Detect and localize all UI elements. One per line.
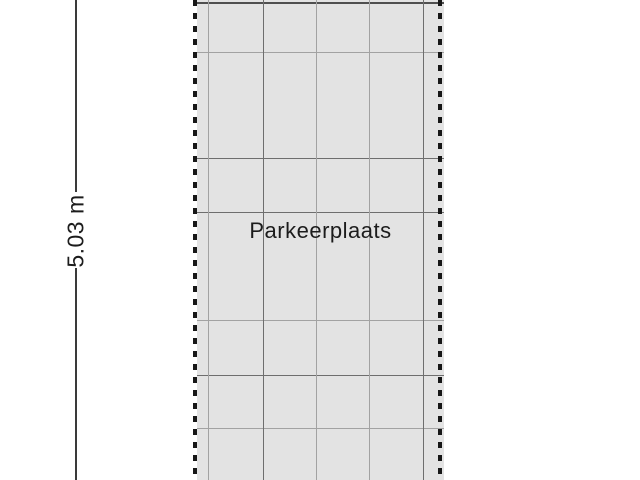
tile-grid-line-horizontal [197,375,444,376]
tile-grid-line-horizontal [197,2,444,4]
tile-grid-line-horizontal [197,158,444,159]
boundary-dashed-right [438,0,442,480]
tile-grid-line-horizontal [197,320,444,321]
dimension-label: 5.03 m [63,194,90,267]
tile-grid-line-horizontal [197,52,444,53]
tile-grid-line-vertical [208,0,209,480]
tile-grid-line-horizontal [197,428,444,429]
boundary-dashed-left [193,0,197,480]
dimension-line-lower [75,268,77,480]
dimension-line-upper [75,0,77,192]
tile-grid-line-vertical [423,0,424,480]
room-label: Parkeerplaats [249,218,391,244]
tile-grid-line-horizontal [197,212,444,213]
floorplan-canvas: 5.03 m Parkeerplaats [0,0,640,480]
parking-area: Parkeerplaats [197,0,444,480]
